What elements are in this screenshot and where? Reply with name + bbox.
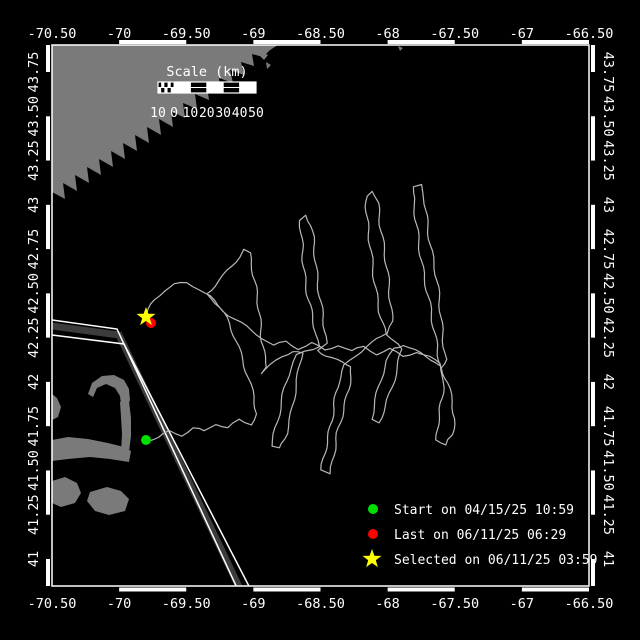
legend-start-label: Start on 04/15/25 10:59: [394, 503, 574, 518]
lat-tick-label-left: 42.25: [26, 317, 42, 358]
scalebar-tick-label: 20: [199, 106, 215, 121]
degree-band: [46, 45, 50, 72]
lat-tick-label-right: 43.50: [600, 96, 616, 137]
scalebar-subcell: [164, 88, 167, 94]
degree-band: [46, 116, 50, 160]
lat-tick-label-right: 41: [600, 551, 616, 567]
scalebar-zero-label: 0: [170, 106, 178, 121]
lat-tick-label-left: 43.50: [26, 96, 42, 137]
legend-last-dot-icon: [368, 529, 378, 539]
land-polygon: [52, 394, 61, 420]
degree-band: [591, 382, 595, 426]
glider-track-line: [146, 185, 455, 474]
degree-band: [522, 588, 589, 592]
land-polygon: [266, 62, 271, 69]
degree-band: [119, 588, 186, 592]
lat-tick-label-right: 42.75: [600, 229, 616, 270]
scalebar-subcell: [164, 82, 167, 88]
lat-tick-label-left: 43.75: [26, 52, 42, 93]
land-polygon: [120, 401, 131, 453]
lat-tick-label-left: 43.25: [26, 140, 42, 181]
lon-tick-label-bottom: -67: [510, 596, 534, 612]
scalebar-subcell: [161, 88, 164, 94]
legend-start-dot-icon: [368, 504, 378, 514]
scalebar-edge-label: 10: [150, 106, 166, 121]
lon-tick-label-top: -69.50: [162, 26, 211, 42]
lon-tick-label-bottom: -68.50: [296, 596, 345, 612]
scalebar-title: Scale (km): [166, 64, 247, 80]
lon-tick-label-top: -70.50: [28, 26, 77, 42]
lon-tick-label-bottom: -70: [107, 596, 131, 612]
lat-tick-label-left: 43: [26, 197, 42, 213]
lat-tick-label-right: 41.25: [600, 494, 616, 535]
lon-tick-label-bottom: -69.50: [162, 596, 211, 612]
degree-band: [46, 470, 50, 514]
degree-band: [591, 116, 595, 160]
lon-tick-label-top: -68.50: [296, 26, 345, 42]
lon-tick-label-top: -67: [510, 26, 534, 42]
land-polygon: [52, 477, 81, 507]
lat-tick-label-right: 43.25: [600, 140, 616, 181]
map-window: -70.50-70.50-70-70-69.50-69.50-69-69-68.…: [0, 0, 640, 640]
legend-selected-star-icon: [363, 549, 382, 567]
lat-tick-label-left: 42.50: [26, 273, 42, 314]
legend: Start on 04/15/25 10:59 Last on 06/11/25…: [363, 503, 598, 568]
legend-last-label: Last on 06/11/25 06:29: [394, 528, 566, 543]
lat-tick-label-right: 42.25: [600, 317, 616, 358]
degree-band: [46, 382, 50, 426]
legend-selected-label: Selected on 06/11/25 03:59: [394, 553, 598, 568]
degree-band: [388, 588, 455, 592]
lat-tick-label-right: 43.75: [600, 52, 616, 93]
degree-band: [253, 588, 320, 592]
scalebar-tick-label: 40: [232, 106, 248, 121]
land-polygon: [88, 375, 130, 405]
scalebar-tick-label: 50: [248, 106, 264, 121]
lat-tick-label-left: 41.75: [26, 406, 42, 447]
map-plot: -70.50-70.50-70-70-69.50-69.50-69-69-68.…: [0, 0, 640, 640]
lon-tick-label-top: -67.50: [430, 26, 479, 42]
shipping-lane-separation-zone: [52, 326, 241, 591]
lon-tick-label-bottom: -69: [241, 596, 265, 612]
lon-tick-label-top: -68: [375, 26, 399, 42]
scalebar-subcell: [161, 82, 164, 88]
lat-tick-label-left: 42.75: [26, 229, 42, 270]
lat-tick-label-right: 42.50: [600, 273, 616, 314]
scalebar-tick-label: 10: [183, 106, 199, 121]
lat-tick-label-left: 41: [26, 551, 42, 567]
lon-tick-label-bottom: -68: [375, 596, 399, 612]
lat-tick-label-right: 41.50: [600, 450, 616, 491]
lat-tick-label-right: 43: [600, 197, 616, 213]
lat-tick-label-left: 41.50: [26, 450, 42, 491]
lon-tick-label-top: -66.50: [565, 26, 614, 42]
start-position-marker[interactable]: [141, 435, 151, 445]
land-polygon: [87, 487, 129, 515]
land-polygon: [52, 437, 131, 462]
degree-band: [591, 470, 595, 514]
lon-tick-label-bottom: -70.50: [28, 596, 77, 612]
lon-tick-label-top: -70: [107, 26, 131, 42]
degree-band: [46, 293, 50, 337]
lon-tick-label-top: -69: [241, 26, 265, 42]
lon-tick-label-bottom: -67.50: [430, 596, 479, 612]
degree-band: [591, 205, 595, 249]
land-polygon: [398, 46, 403, 51]
scalebar-tick-label: 30: [215, 106, 231, 121]
lat-tick-label-left: 42: [26, 374, 42, 390]
degree-band: [591, 45, 595, 72]
scalebar-bar: [158, 82, 256, 93]
lon-tick-label-bottom: -66.50: [565, 596, 614, 612]
lat-tick-label-right: 42: [600, 374, 616, 390]
degree-band: [46, 205, 50, 249]
scalebar-subcell: [168, 82, 171, 88]
lat-tick-label-right: 41.75: [600, 406, 616, 447]
degree-band: [591, 293, 595, 337]
degree-band: [46, 559, 50, 586]
lat-tick-label-left: 41.25: [26, 494, 42, 535]
scalebar-subcell: [168, 88, 171, 94]
